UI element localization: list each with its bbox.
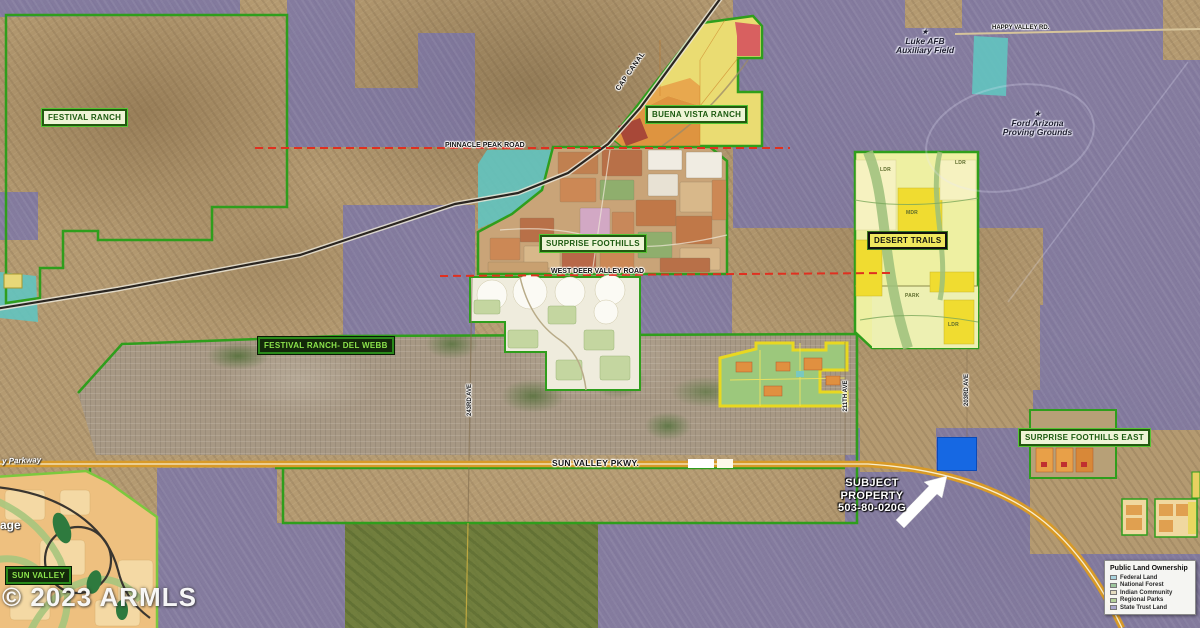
legend-label-parks: Regional Parks	[1120, 597, 1163, 603]
map[interactable]: FESTIVAL RANCH BUENA VISTA RANCH SURPRIS…	[0, 0, 1200, 628]
legend-label-state-trust: State Trust Land	[1120, 605, 1167, 611]
happy-valley-road-label: HAPPY VALLEY RD.	[992, 25, 1049, 31]
legend-swatch-parks	[1110, 598, 1117, 603]
subject-line1: SUBJECT	[832, 477, 912, 490]
armls-watermark: © 2023 ARMLS	[2, 582, 197, 613]
festival-ranch-boundary	[6, 15, 287, 303]
festival-ranch-label: FESTIVAL RANCH	[42, 109, 127, 126]
legend-item: State Trust Land	[1110, 605, 1190, 611]
deer-valley-south-plan-parcel	[470, 275, 640, 390]
zone-ldr-label: LDR	[880, 167, 891, 173]
ford-line2: Proving Grounds	[995, 128, 1080, 137]
zone-ldr-label: LDR	[948, 322, 959, 328]
legend-label-federal: Federal Land	[1120, 575, 1157, 581]
legend-swatch-federal	[1110, 575, 1117, 580]
zone-park-label: PARK	[905, 293, 920, 299]
avenue-203rd-label: 203RD AVE	[964, 374, 970, 406]
avenue-243rd-label: 243RD AVE	[467, 384, 473, 416]
buena-vista-ranch-parcel	[612, 16, 762, 146]
buena-vista-ranch-label: BUENA VISTA RANCH	[646, 106, 747, 123]
desert-trails-label: DESERT TRAILS	[868, 232, 947, 249]
luke-afb-line2: Auxiliary Field	[885, 46, 965, 55]
pinnacle-peak-road-label: PINNACLE PEAK ROAD	[445, 142, 525, 149]
zone-mdr-label: MDR	[906, 210, 918, 216]
desert-trails-parcel	[855, 152, 978, 348]
mid-south-plan-parcel	[720, 343, 847, 406]
legend: Public Land Ownership Federal Land Natio…	[1104, 560, 1196, 615]
legend-swatch-indian	[1110, 590, 1117, 595]
legend-swatch-state-trust	[1110, 605, 1117, 610]
zone-ldr-label: LDR	[955, 160, 966, 166]
luke-afb-label: Luke AFB Auxiliary Field	[885, 37, 965, 55]
ford-proving-grounds-label: Ford Arizona Proving Grounds	[995, 119, 1080, 137]
legend-swatch-forest	[1110, 583, 1117, 588]
legend-item: Regional Parks	[1110, 597, 1190, 603]
surprise-foothills-east-label: SURPRISE FOOTHILLS EAST	[1019, 429, 1150, 446]
subject-property-parcel	[937, 437, 977, 471]
avenue-211th-label: 211TH AVE	[843, 380, 849, 411]
del-webb-label: FESTIVAL RANCH- DEL WEBB	[258, 337, 394, 354]
subject-property-label: SUBJECT PROPERTY 503-80-020G	[832, 477, 912, 515]
legend-item: Indian Community	[1110, 590, 1190, 596]
legend-item: Federal Land	[1110, 575, 1190, 581]
surprise-foothills-label: SURPRISE FOOTHILLS	[540, 235, 646, 252]
legend-label-forest: National Forest	[1120, 582, 1164, 588]
legend-item: National Forest	[1110, 582, 1190, 588]
legend-label-indian: Indian Community	[1120, 590, 1172, 596]
sun-valley-parkway-label: SUN VALLEY PKWY.	[552, 458, 639, 468]
subject-line2: PROPERTY	[832, 490, 912, 503]
west-deer-valley-road-label: WEST DEER VALLEY ROAD	[551, 268, 644, 275]
legend-title: Public Land Ownership	[1110, 565, 1190, 572]
village-fragment-label: age	[0, 518, 21, 532]
subject-line3: 503-80-020G	[832, 502, 912, 515]
surprise-foothills-parcel	[478, 147, 727, 274]
parkway-fragment-label: y Parkway	[2, 455, 41, 465]
map-graphics	[0, 0, 1200, 628]
